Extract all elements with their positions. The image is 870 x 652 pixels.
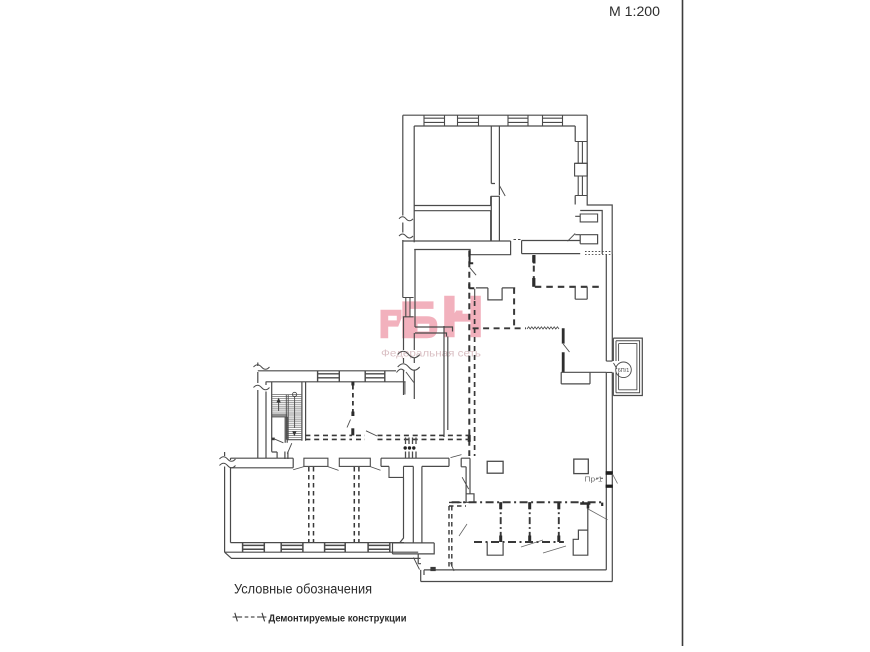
svg-text:Демонтируемые конструкции: Демонтируемые конструкции — [269, 614, 407, 625]
svg-text:Пр-1: Пр-1 — [585, 475, 603, 484]
svg-text:Условные обозначения: Условные обозначения — [234, 582, 372, 597]
svg-text:6П/1: 6П/1 — [618, 368, 630, 374]
svg-text:М 1:200: М 1:200 — [609, 4, 660, 19]
svg-text:Федеральная сеть: Федеральная сеть — [381, 348, 482, 360]
